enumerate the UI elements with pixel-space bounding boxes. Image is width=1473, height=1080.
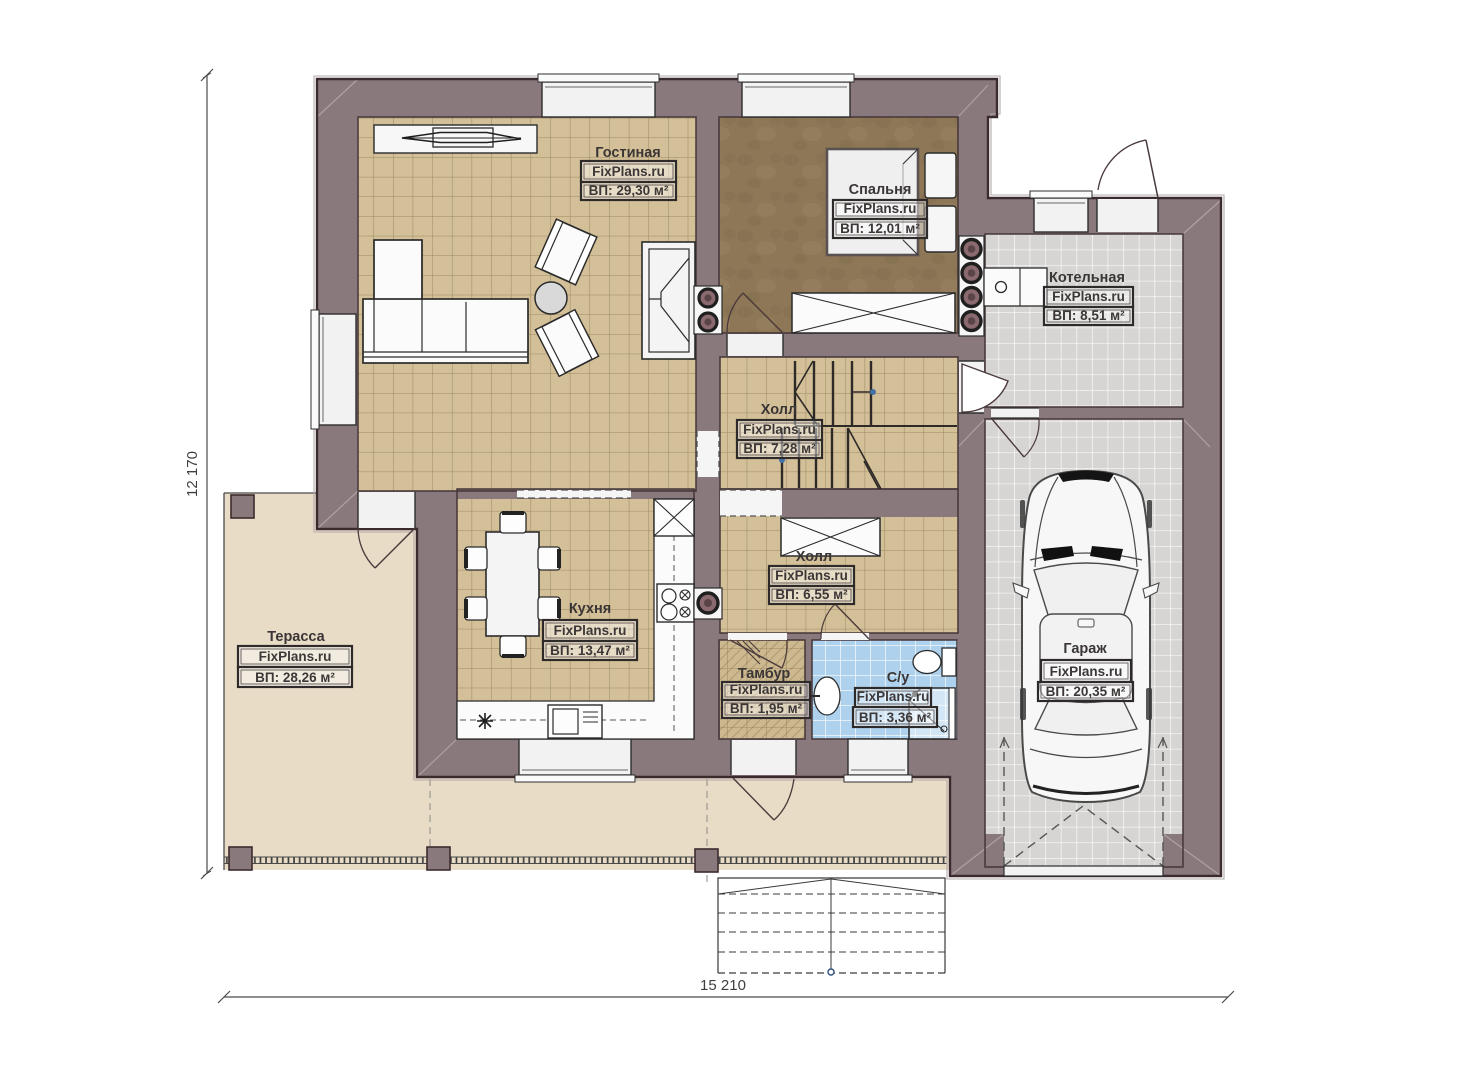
svg-text:ВП: 8,51 м²: ВП: 8,51 м² — [1052, 308, 1125, 323]
svg-text:FixPlans.ru: FixPlans.ru — [259, 649, 332, 664]
svg-text:ВП: 6,55 м²: ВП: 6,55 м² — [775, 587, 848, 602]
svg-text:Тамбур: Тамбур — [738, 666, 791, 682]
svg-text:FixPlans.ru: FixPlans.ru — [844, 201, 917, 216]
svg-text:FixPlans.ru: FixPlans.ru — [743, 422, 816, 437]
svg-text:12 170: 12 170 — [184, 451, 201, 497]
svg-text:15 210: 15 210 — [700, 977, 746, 994]
svg-text:Холл: Холл — [796, 549, 832, 565]
svg-text:FixPlans.ru: FixPlans.ru — [592, 164, 665, 179]
svg-text:С/у: С/у — [887, 670, 910, 686]
svg-text:Терасса: Терасса — [267, 629, 325, 645]
svg-text:Кухня: Кухня — [569, 601, 611, 617]
svg-text:Котельная: Котельная — [1049, 270, 1125, 286]
svg-text:FixPlans.ru: FixPlans.ru — [730, 682, 803, 697]
svg-text:FixPlans.ru: FixPlans.ru — [554, 623, 627, 638]
svg-text:FixPlans.ru: FixPlans.ru — [775, 568, 848, 583]
svg-text:ВП: 7,28 м²: ВП: 7,28 м² — [743, 441, 816, 456]
svg-text:ВП: 29,30 м²: ВП: 29,30 м² — [589, 183, 669, 198]
svg-text:FixPlans.ru: FixPlans.ru — [857, 689, 930, 704]
svg-text:ВП: 20,35 м²: ВП: 20,35 м² — [1046, 684, 1126, 699]
svg-text:ВП: 28,26 м²: ВП: 28,26 м² — [255, 670, 335, 685]
svg-text:ВП: 1,95 м²: ВП: 1,95 м² — [730, 701, 803, 716]
svg-text:ВП: 12,01 м²: ВП: 12,01 м² — [840, 221, 920, 236]
svg-text:Гараж: Гараж — [1063, 641, 1107, 657]
svg-text:ВП: 13,47 м²: ВП: 13,47 м² — [550, 643, 630, 658]
svg-text:Гостиная: Гостиная — [595, 145, 661, 161]
svg-text:ВП: 3,36 м²: ВП: 3,36 м² — [859, 710, 932, 725]
svg-text:Холл: Холл — [761, 402, 797, 418]
svg-text:FixPlans.ru: FixPlans.ru — [1052, 289, 1125, 304]
svg-text:Спальня: Спальня — [849, 182, 912, 198]
svg-text:FixPlans.ru: FixPlans.ru — [1050, 664, 1123, 679]
